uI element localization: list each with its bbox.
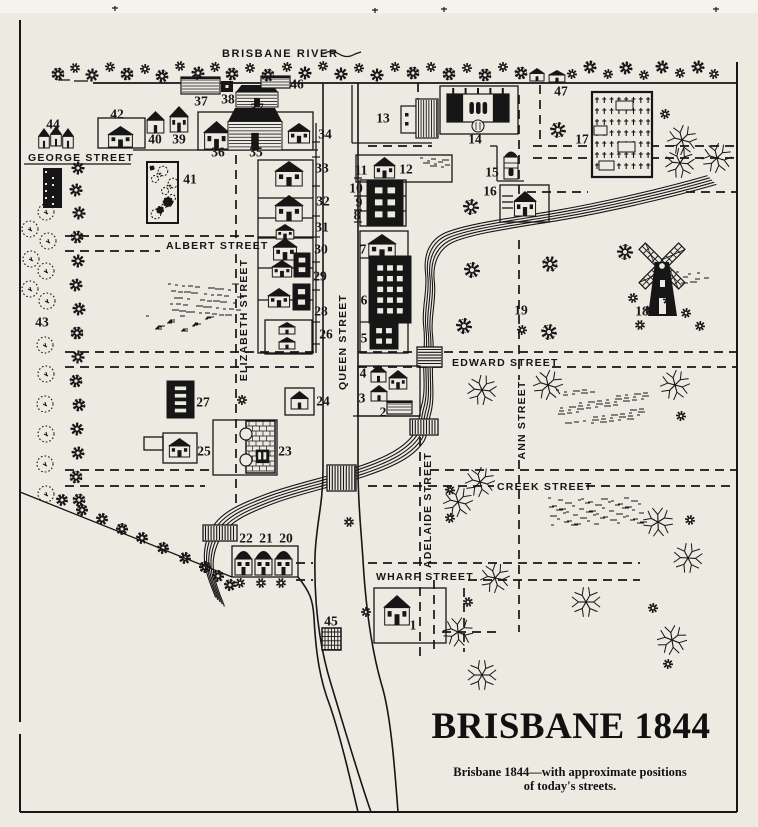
round-roof xyxy=(235,551,252,559)
marker-label-21: 21 xyxy=(259,531,273,546)
tree-trunk xyxy=(481,389,483,391)
marker-label-13: 13 xyxy=(376,111,390,126)
tree-pinwheel xyxy=(146,70,149,73)
block-window xyxy=(387,308,393,313)
tree-pinwheel xyxy=(107,63,109,66)
tree-branch xyxy=(487,481,495,484)
plot-speck xyxy=(52,203,54,205)
tree-branch xyxy=(575,608,583,611)
tree-pinwheel xyxy=(70,66,74,67)
house-roof xyxy=(168,438,191,446)
tree-pinwheel xyxy=(128,71,132,73)
tree-branch xyxy=(665,627,671,633)
building-block xyxy=(367,180,403,225)
house-window xyxy=(388,611,392,617)
tree-branch xyxy=(466,487,474,488)
tree-pinwheel xyxy=(236,584,239,586)
boundary-line xyxy=(20,492,232,577)
tree-pinwheel xyxy=(715,75,717,78)
tree-pinwheel xyxy=(641,323,644,325)
round-roof xyxy=(275,551,292,559)
marker-label-9: 9 xyxy=(356,195,363,210)
house-window xyxy=(402,611,406,617)
tree-pinwheel xyxy=(468,597,469,601)
tree-pinwheel xyxy=(669,300,673,301)
block-window xyxy=(377,287,383,292)
marker-label-17: 17 xyxy=(575,132,589,147)
tree-pinwheel xyxy=(102,513,103,517)
tree-branch xyxy=(678,627,680,635)
block-window xyxy=(375,187,383,193)
house-roof xyxy=(107,126,134,135)
tree-branch xyxy=(690,565,692,573)
tree-branch xyxy=(673,162,680,163)
round-window xyxy=(246,562,250,566)
map-page: 1234567891011121314151617181920212223242… xyxy=(0,0,758,827)
block-window xyxy=(175,401,186,405)
block-outline xyxy=(144,437,163,450)
tree-pinwheel xyxy=(451,487,454,489)
block-window xyxy=(397,308,403,313)
tree-pinwheel xyxy=(471,199,472,205)
tree-branch xyxy=(478,660,479,668)
tree-pinwheel xyxy=(74,327,76,331)
tree-pinwheel xyxy=(128,75,130,79)
tree-pinwheel xyxy=(261,578,262,582)
house-window xyxy=(402,380,405,384)
tree-pinwheel xyxy=(110,62,111,66)
tree-branch xyxy=(443,629,451,631)
marker-label-38: 38 xyxy=(221,92,235,107)
tree-pinwheel xyxy=(545,325,548,330)
tree-pinwheel xyxy=(392,63,395,66)
tree-branch xyxy=(672,635,678,640)
tree-pinwheel xyxy=(559,132,562,137)
house-window xyxy=(279,174,283,179)
house-window xyxy=(286,269,289,272)
tree-pinwheel xyxy=(77,474,81,476)
round-window xyxy=(238,562,242,566)
tree-pinwheel xyxy=(70,478,74,480)
tree-pinwheel xyxy=(463,328,464,334)
tree-branch xyxy=(502,576,510,580)
tree-pinwheel xyxy=(259,584,260,588)
tree-pinwheel xyxy=(210,66,214,67)
grave-plot xyxy=(616,101,633,110)
tree-pinwheel xyxy=(479,76,483,78)
tree-pinwheel xyxy=(482,69,484,73)
tree-branch xyxy=(673,647,679,653)
tree-pinwheel xyxy=(641,325,645,326)
round-window xyxy=(266,562,270,566)
tree-branch xyxy=(453,502,458,507)
tree-branch xyxy=(688,558,691,565)
tree-pinwheel xyxy=(486,76,488,80)
tree-canopy xyxy=(543,257,557,271)
marker-label-20: 20 xyxy=(279,531,293,546)
church-dome xyxy=(472,120,484,132)
marker-label-23: 23 xyxy=(278,444,292,459)
house-roof xyxy=(278,322,296,327)
tree-canopy xyxy=(70,471,81,482)
block-window xyxy=(397,265,403,270)
tree-pinwheel xyxy=(687,310,690,312)
tree-pinwheel xyxy=(549,324,550,330)
marker-label-30: 30 xyxy=(314,242,328,257)
tree-pinwheel xyxy=(450,75,452,79)
tree-pinwheel xyxy=(224,584,228,585)
tree-trunk xyxy=(687,557,689,559)
tree-branch xyxy=(658,529,663,535)
tree-pinwheel xyxy=(668,295,669,299)
tree-pinwheel xyxy=(181,64,184,66)
marker-label-45: 45 xyxy=(324,614,338,629)
tree-pinwheel xyxy=(241,583,245,584)
house-door xyxy=(118,139,123,147)
tree-branch xyxy=(536,376,541,383)
tree-branch xyxy=(493,563,496,571)
street-label-adelaide: ADELAIDE STREET xyxy=(422,452,434,568)
block-window xyxy=(386,328,392,333)
tree-branch xyxy=(485,476,493,477)
tree-pinwheel xyxy=(445,517,449,518)
tree-pinwheel xyxy=(660,113,664,114)
house-roof xyxy=(169,106,189,117)
tree-pinwheel xyxy=(279,584,280,588)
tree-pinwheel xyxy=(697,322,699,325)
house-window xyxy=(304,134,307,138)
tree-pinwheel xyxy=(468,65,471,68)
house-window xyxy=(372,247,376,251)
marker-label-15: 15 xyxy=(485,165,499,180)
tree-pinwheel xyxy=(681,70,684,73)
tree-branch xyxy=(671,633,672,640)
house-roof xyxy=(367,234,397,244)
tree-branch xyxy=(672,640,673,647)
tree-branch xyxy=(680,125,683,133)
tree-pinwheel xyxy=(111,64,114,66)
tree-branch xyxy=(680,163,687,164)
tree-pinwheel xyxy=(230,579,231,583)
tree-pinwheel xyxy=(256,581,260,582)
tree-branch xyxy=(668,169,676,171)
tree-branch xyxy=(490,675,497,680)
tree-branch xyxy=(478,475,480,482)
tree-branch xyxy=(648,511,651,519)
tree-branch xyxy=(482,384,486,390)
tree-pinwheel xyxy=(265,69,267,73)
tree-pinwheel xyxy=(362,608,365,611)
marker-label-11: 11 xyxy=(355,163,368,178)
tree-branch xyxy=(715,165,718,173)
block-window xyxy=(175,409,186,413)
tree-branch xyxy=(468,473,473,480)
house-window xyxy=(530,204,533,209)
tree-pinwheel xyxy=(709,73,713,74)
block-window xyxy=(397,297,403,302)
house-roof xyxy=(383,595,411,608)
house-roof xyxy=(373,157,396,166)
tree-pinwheel xyxy=(638,326,639,330)
round-roof xyxy=(255,551,272,559)
tree-branch xyxy=(458,632,459,639)
tree-pinwheel xyxy=(282,584,284,587)
house-window xyxy=(388,247,392,251)
tree-branch xyxy=(467,389,474,393)
house-window xyxy=(111,137,115,141)
tree-pinwheel xyxy=(687,516,689,519)
tree-pinwheel xyxy=(142,532,143,536)
tree-branch xyxy=(486,382,494,384)
tree-pinwheel xyxy=(240,578,241,582)
tree-pinwheel xyxy=(714,69,715,73)
grave-plot xyxy=(599,161,614,170)
tree-pinwheel xyxy=(181,67,183,70)
tree-branch xyxy=(572,602,579,607)
tree-branch xyxy=(452,618,458,624)
tree-branch xyxy=(493,571,495,578)
house-door xyxy=(280,271,284,277)
tree-pinwheel xyxy=(523,331,525,334)
tree-pinwheel xyxy=(78,334,80,338)
tree-pinwheel xyxy=(710,75,713,77)
tree-pinwheel xyxy=(76,66,79,68)
house-window xyxy=(295,209,299,214)
tree-pinwheel xyxy=(451,519,453,522)
tree-branch xyxy=(715,143,718,151)
tree-pinwheel xyxy=(410,67,412,71)
tree-pinwheel xyxy=(279,578,281,581)
house-door xyxy=(523,207,527,216)
tree-pinwheel xyxy=(396,68,399,71)
tree-pinwheel xyxy=(344,520,348,521)
tree-branch xyxy=(457,509,460,517)
tree-pinwheel xyxy=(241,584,243,587)
tree-branch xyxy=(550,392,556,397)
tree-pinwheel xyxy=(669,665,671,668)
tree-pinwheel xyxy=(550,334,553,339)
tree-branch xyxy=(651,518,658,522)
tree-pinwheel xyxy=(464,318,465,324)
tree-pinwheel xyxy=(73,471,75,475)
tree-pinwheel xyxy=(282,583,286,584)
tree-canopy xyxy=(71,231,82,242)
block-window xyxy=(388,199,396,205)
marker-label-37: 37 xyxy=(250,101,264,116)
tree-pinwheel xyxy=(214,68,215,72)
tree-pinwheel xyxy=(499,63,502,66)
tree-branch xyxy=(472,379,479,383)
tree-pinwheel xyxy=(414,74,416,78)
tree-branch xyxy=(586,602,590,608)
tree-branch xyxy=(670,385,675,390)
tree-pinwheel xyxy=(63,497,67,499)
tree-pinwheel xyxy=(465,598,467,601)
marker-label-24: 24 xyxy=(316,394,330,409)
tree-pinwheel xyxy=(665,660,667,663)
tree-branch xyxy=(451,500,458,502)
tree-pinwheel xyxy=(78,506,81,509)
tree-branch xyxy=(674,558,681,563)
tree-branch xyxy=(684,564,685,572)
block-window xyxy=(376,338,382,343)
tree-pinwheel xyxy=(427,68,430,71)
tree-pinwheel xyxy=(218,570,219,574)
round-window xyxy=(258,562,262,566)
tree-branch xyxy=(555,387,560,394)
tree-branch xyxy=(458,502,460,509)
tree-pinwheel xyxy=(682,314,685,316)
tree-branch xyxy=(478,467,481,475)
marker-label-19: 19 xyxy=(514,303,528,318)
house-roof xyxy=(370,385,388,392)
tree-pinwheel xyxy=(71,69,74,71)
tree-pinwheel xyxy=(713,75,714,79)
tree-pinwheel xyxy=(691,517,694,519)
tree-pinwheel xyxy=(237,579,239,582)
tree-branch xyxy=(465,633,473,635)
tree-pinwheel xyxy=(175,65,179,66)
tree-pinwheel xyxy=(212,575,216,576)
brick-arch xyxy=(240,428,252,440)
tree-branch xyxy=(687,159,694,164)
tree-branch xyxy=(671,625,675,632)
tree-branch xyxy=(546,370,550,378)
marker-label-33: 33 xyxy=(315,161,329,176)
tree-trunk xyxy=(585,601,587,603)
tree-branch xyxy=(495,578,497,585)
tree-pinwheel xyxy=(676,74,679,77)
house-roof xyxy=(290,391,309,399)
tree-branch xyxy=(553,379,561,380)
tree-pinwheel xyxy=(446,519,449,521)
house-door xyxy=(536,76,539,81)
tree-branch xyxy=(471,681,479,684)
tree-pinwheel xyxy=(638,320,640,323)
tree-branch xyxy=(553,372,554,380)
tree-pinwheel xyxy=(235,582,239,583)
tree-pinwheel xyxy=(681,411,682,415)
tree-pinwheel xyxy=(459,320,463,325)
tree-canopy xyxy=(515,67,526,78)
block-window xyxy=(386,338,392,343)
tree-branch xyxy=(687,164,693,170)
tree-pinwheel xyxy=(472,209,476,214)
tree-branch xyxy=(667,138,675,141)
tree-branch xyxy=(658,518,664,522)
grave-plot xyxy=(618,142,635,152)
tree-pinwheel xyxy=(281,578,282,582)
tree-branch xyxy=(465,504,470,511)
tree-branch xyxy=(687,126,688,134)
tree-branch xyxy=(489,584,490,592)
house-window xyxy=(389,168,392,172)
tree-pinwheel xyxy=(360,69,362,72)
block-window xyxy=(298,289,305,294)
house-window xyxy=(222,136,226,141)
house-door xyxy=(396,382,400,389)
tree-canopy xyxy=(73,494,84,505)
tree-pinwheel xyxy=(609,71,612,73)
tree-branch xyxy=(677,156,680,163)
tree-pinwheel xyxy=(573,75,575,78)
tree-pinwheel xyxy=(619,253,624,257)
tree-branch xyxy=(695,554,702,559)
tree-pinwheel xyxy=(677,417,680,419)
tree-branch xyxy=(480,477,485,482)
tree-pinwheel xyxy=(283,68,286,70)
tree-pinwheel xyxy=(262,584,264,587)
tree-pinwheel xyxy=(324,63,327,65)
house-door xyxy=(286,212,291,221)
tree-branch xyxy=(486,681,494,684)
tree-pinwheel xyxy=(701,327,703,330)
plot-speck xyxy=(52,196,54,198)
tree-canopy xyxy=(71,327,82,338)
tree-pinwheel xyxy=(59,75,61,79)
tree-pinwheel xyxy=(467,603,468,607)
tree-pinwheel xyxy=(681,312,685,313)
tree-pinwheel xyxy=(556,132,557,138)
plot-speck xyxy=(45,183,47,185)
tree-pinwheel xyxy=(662,110,664,113)
house-window xyxy=(183,120,186,125)
garden-shrub xyxy=(163,197,173,207)
tree-branch xyxy=(456,495,458,502)
tree-pinwheel xyxy=(246,69,249,72)
store-window xyxy=(405,122,409,126)
tree-trunk xyxy=(479,481,481,483)
tree-pinwheel xyxy=(78,330,82,332)
round-window xyxy=(278,562,282,566)
tree-branch xyxy=(664,518,672,519)
marker-label-35: 35 xyxy=(249,145,263,160)
house-door xyxy=(283,252,288,260)
block-window xyxy=(397,287,403,292)
marker-label-27: 27 xyxy=(196,395,210,410)
tree-pinwheel xyxy=(569,70,571,73)
tree-branch xyxy=(482,675,486,681)
tree-pinwheel xyxy=(678,412,680,415)
tree-branch xyxy=(586,596,590,602)
windmill-hub xyxy=(659,263,666,270)
tree-pinwheel xyxy=(547,334,548,340)
marker-label-1: 1 xyxy=(410,618,417,633)
tree-branch xyxy=(463,495,471,496)
tree-pinwheel xyxy=(685,314,686,318)
tree-pinwheel xyxy=(663,299,667,300)
house-door xyxy=(177,450,181,457)
tree-branch xyxy=(478,675,482,681)
caption-line2: of today's streets. xyxy=(524,779,616,793)
tree-branch xyxy=(452,507,453,515)
tree-branch xyxy=(676,163,680,169)
tree-pinwheel xyxy=(73,64,75,67)
tree-pinwheel xyxy=(633,293,634,297)
tree-branch xyxy=(451,629,458,632)
tree-canopy xyxy=(52,68,63,79)
tree-pinwheel xyxy=(667,301,668,305)
block-window xyxy=(375,199,383,205)
tree-canopy xyxy=(443,68,454,79)
house-window xyxy=(289,232,292,235)
house-window xyxy=(290,250,294,254)
tree-pinwheel xyxy=(504,68,507,71)
tree-pinwheel xyxy=(55,68,57,72)
tree-pinwheel xyxy=(288,68,290,71)
tree-pinwheel xyxy=(262,581,265,583)
house-door xyxy=(285,330,288,334)
